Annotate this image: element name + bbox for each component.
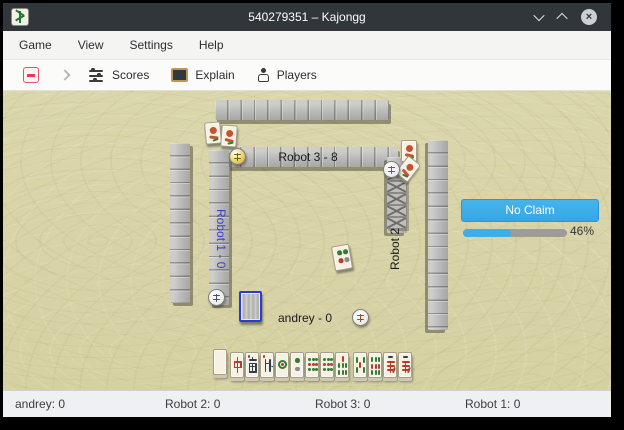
abort-game-icon[interactable] — [23, 67, 39, 83]
chevron-right-icon[interactable] — [57, 67, 73, 83]
scores-icon — [89, 68, 105, 83]
status-player-balance: Robot 2: 0 — [165, 397, 220, 411]
wall-left-outer — [170, 143, 190, 303]
hand-tile-wan[interactable] — [398, 352, 412, 378]
wall-top-outer — [215, 100, 389, 120]
toolbar-button-players[interactable]: Players — [257, 68, 317, 83]
toolbar: ScoresExplainPlayers — [3, 60, 611, 91]
hand-tile-bamboo9[interactable] — [368, 352, 382, 378]
toolbar-button-label: Scores — [112, 68, 149, 82]
toolbar-button-label: Explain — [195, 68, 234, 82]
discarded-tile — [331, 244, 353, 272]
maximize-icon[interactable] — [556, 13, 567, 24]
crossed-wall-tile — [386, 181, 407, 193]
player-label-top: Robot 3 - 8 — [233, 150, 383, 164]
players-icon — [257, 68, 270, 83]
titlebar: 540279351 – Kajongg × — [3, 3, 611, 31]
minimize-icon[interactable] — [533, 10, 544, 21]
bonus-tile — [204, 121, 222, 144]
hand-tile-dot9[interactable] — [320, 352, 334, 378]
menu-item-help[interactable]: Help — [199, 38, 224, 52]
hand-tile-dot2[interactable] — [290, 352, 304, 378]
toolbar-button-explain[interactable]: Explain — [171, 68, 234, 82]
player-label-left: Robot 1 - 0 — [208, 166, 228, 311]
hand-tile-wan[interactable] — [383, 352, 397, 378]
menu-item-settings[interactable]: Settings — [129, 38, 172, 52]
progress-fill — [463, 229, 511, 237]
toolbar-button-label: Players — [277, 68, 317, 82]
player-label-right: Robot 2 — [388, 196, 408, 301]
status-player-balance: andrey: 0 — [15, 397, 65, 411]
player-hand — [213, 352, 413, 378]
kajongg-window: 540279351 – Kajongg × GameViewSettingsHe… — [3, 3, 611, 417]
hand-tile-bei[interactable] — [260, 352, 274, 378]
wind-disc-right — [383, 161, 400, 178]
kajongg-app-icon — [11, 8, 29, 26]
wall-right-outer — [428, 140, 448, 330]
bonus-tile — [220, 124, 237, 147]
hand-tile-zhong[interactable] — [230, 352, 244, 378]
status-player-balance: Robot 3: 0 — [315, 397, 370, 411]
progress-percent-label: 46% — [570, 224, 594, 238]
hand-tile-bamboo5[interactable] — [353, 352, 367, 378]
claim-timeout-progressbar — [463, 229, 567, 237]
hand-tile-dot1[interactable] — [275, 352, 289, 378]
close-icon[interactable]: × — [581, 9, 597, 25]
hand-tile-blank[interactable] — [213, 349, 227, 375]
status-player-balance: Robot 1: 0 — [465, 397, 520, 411]
hand-tile-dot9[interactable] — [305, 352, 319, 378]
game-table: Robot 3 - 8 Robot 1 - 0 Robot 2 andrey -… — [3, 91, 611, 390]
statusbar: andrey: 0Robot 2: 0Robot 3: 0Robot 1: 0 — [3, 390, 611, 417]
window-controls: × — [535, 3, 597, 31]
hand-tile-nan[interactable] — [245, 352, 259, 378]
chalkboard-icon — [171, 68, 188, 82]
menu-item-game[interactable]: Game — [19, 38, 52, 52]
toolbar-button-scores[interactable]: Scores — [89, 68, 149, 83]
menu-item-view[interactable]: View — [78, 38, 104, 52]
player-label-bottom: andrey - 0 — [245, 311, 365, 325]
menubar: GameViewSettingsHelp — [3, 31, 611, 60]
no-claim-button[interactable]: No Claim — [461, 199, 599, 222]
window-title: 540279351 – Kajongg — [3, 10, 611, 24]
hand-tile-bamboo7[interactable] — [335, 352, 349, 378]
desktop-background: 540279351 – Kajongg × GameViewSettingsHe… — [0, 0, 624, 430]
